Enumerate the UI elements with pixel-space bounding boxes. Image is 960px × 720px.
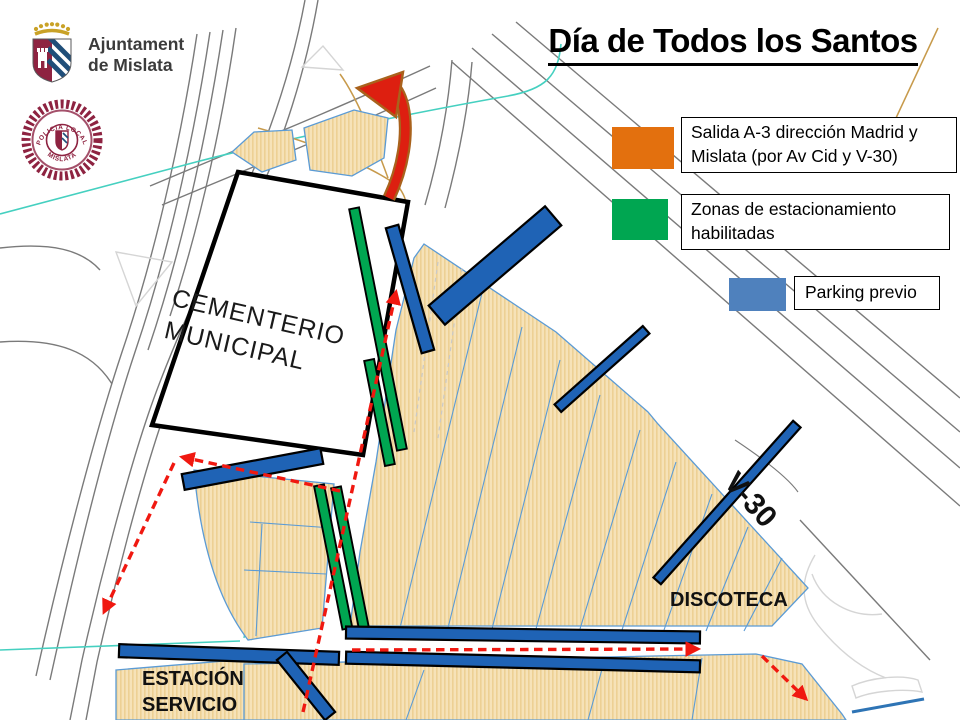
police-badge-icon: POLICIA LOCAL MISLATA	[18, 96, 106, 184]
council-name-line2: de Mislata	[88, 55, 184, 76]
police-badge-shield-icon	[56, 131, 68, 150]
council-name-line1: Ajuntament	[88, 34, 184, 55]
council-brand: Ajuntament de Mislata	[26, 20, 184, 86]
gas-station-label-line2: SERVICIO	[142, 692, 244, 718]
council-coat-of-arms-icon	[26, 20, 78, 86]
legend-label-pre-parking: Parking previo	[794, 276, 940, 310]
police-badge: POLICIA LOCAL MISLATA	[18, 96, 106, 189]
legend-label-parking-zones: Zonas de estacionamiento habilitadas	[681, 194, 950, 250]
slide-canvas: Ajuntament de Mislata POLICIA LOCAL MISL…	[0, 0, 960, 720]
legend-swatch-pre-parking	[729, 278, 786, 311]
slide-title: Día de Todos los Santos	[548, 22, 917, 66]
gas-station-label: ESTACIÓN SERVICIO	[142, 666, 244, 719]
slide-title-wrap: Día de Todos los Santos	[518, 22, 948, 66]
map-canvas	[0, 0, 960, 720]
legend-swatch-exit-route	[612, 127, 674, 169]
legend-label-exit-route: Salida A-3 dirección Madrid y Mislata (p…	[681, 117, 957, 173]
legend-swatch-parking-zones	[612, 199, 668, 240]
discoteca-label: DISCOTECA	[670, 589, 788, 612]
gas-station-label-line1: ESTACIÓN	[142, 666, 244, 692]
council-name: Ajuntament de Mislata	[88, 34, 184, 75]
